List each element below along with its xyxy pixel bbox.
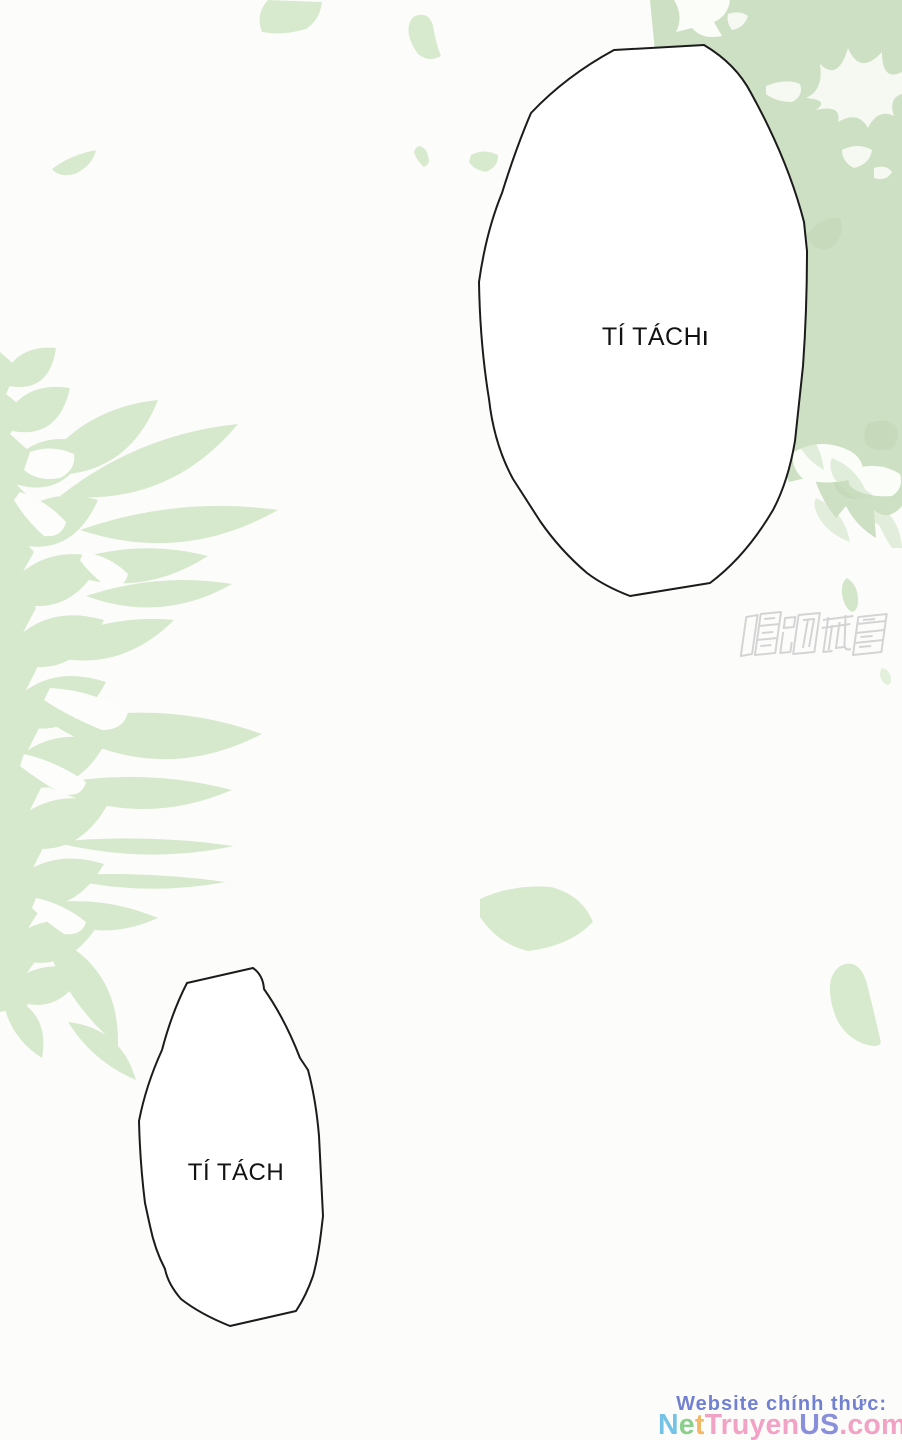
svg-text:NetTruyenUS.com: NetTruyenUS.com <box>658 1409 902 1440</box>
svg-text:TÍ TÁCH: TÍ TÁCH <box>188 1159 284 1186</box>
svg-text:TÍ TÁCH: TÍ TÁCH <box>602 322 702 351</box>
